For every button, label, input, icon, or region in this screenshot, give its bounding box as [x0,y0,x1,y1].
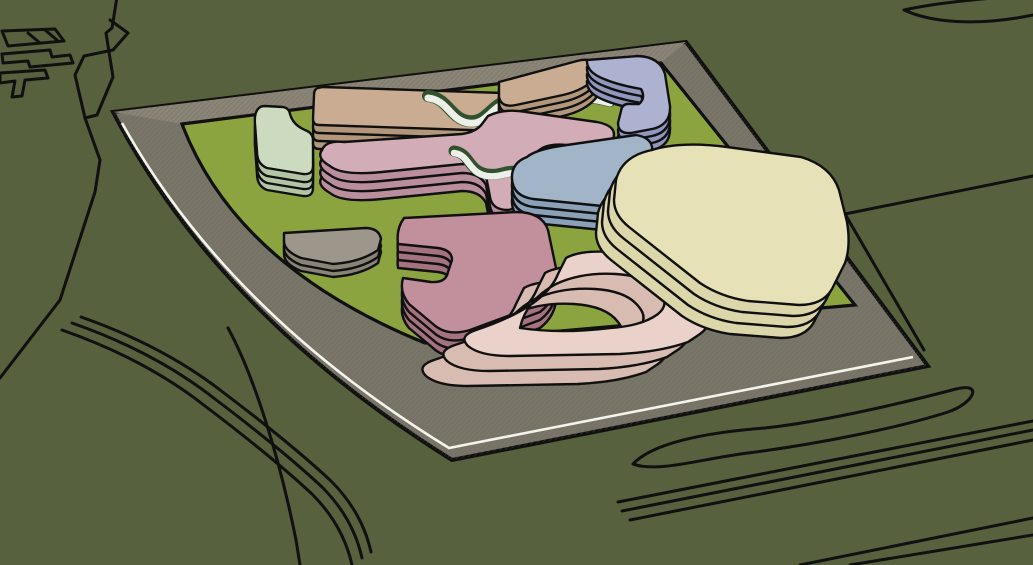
model-viewport [0,0,1033,565]
building-gray-wedge[interactable] [284,228,381,277]
site-model-canvas [0,0,1033,565]
